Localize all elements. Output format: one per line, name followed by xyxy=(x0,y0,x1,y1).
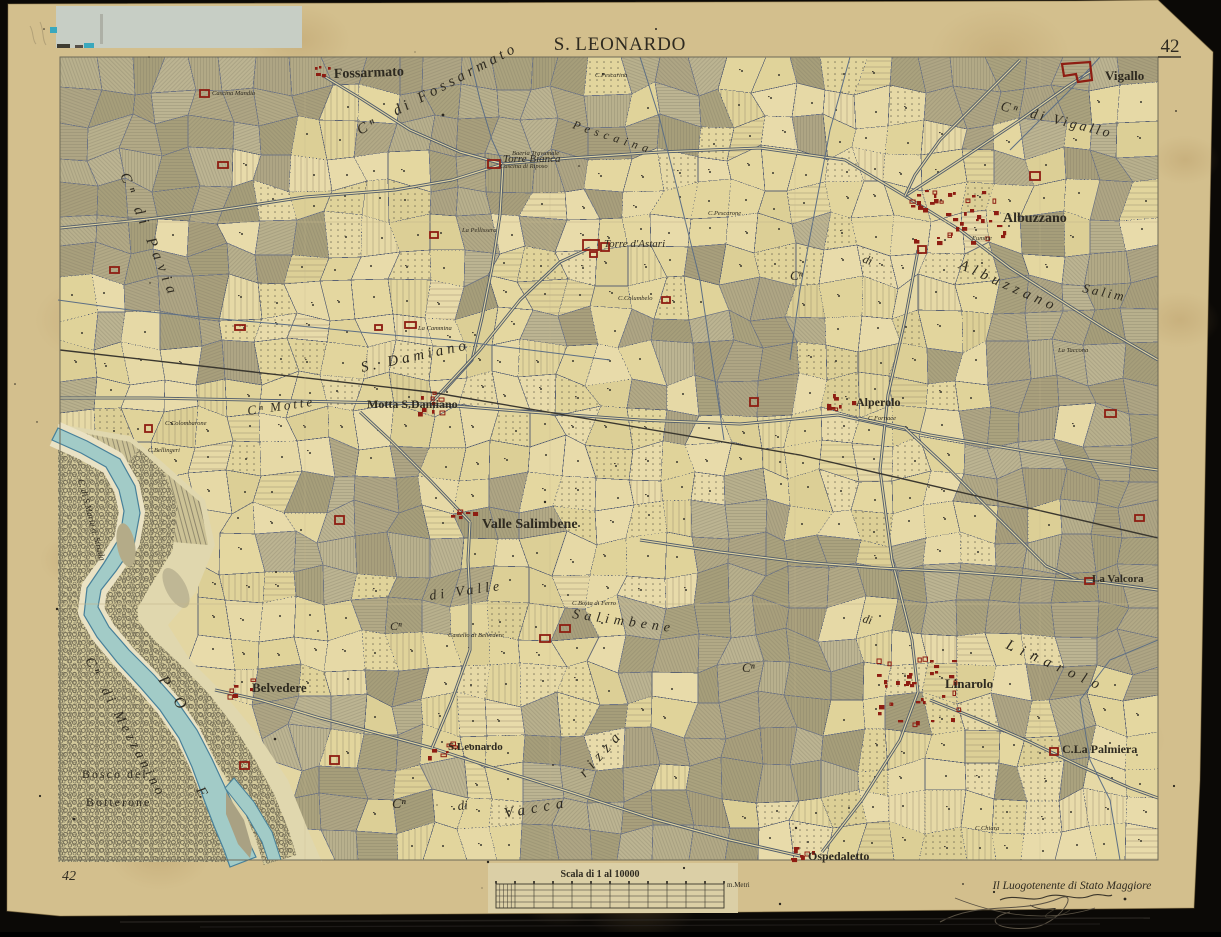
svg-text:Cⁿ: Cⁿ xyxy=(392,797,407,812)
svg-text:C.Bosta di Ferro: C.Bosta di Ferro xyxy=(572,600,617,607)
svg-text:La Cammina: La Cammina xyxy=(417,325,452,332)
svg-text:C.Pescarone: C.Pescarone xyxy=(708,210,741,217)
svg-text:S.Leonardo: S.Leonardo xyxy=(448,741,503,753)
svg-text:C.La Palmiera: C.La Palmiera xyxy=(1062,742,1137,756)
svg-text:Torre Bianca: Torre Bianca xyxy=(503,153,561,165)
svg-text:La Taccona: La Taccona xyxy=(1057,347,1088,354)
svg-text:C.Colombarone: C.Colombarone xyxy=(165,420,207,427)
svg-text:Valle Salimbene: Valle Salimbene xyxy=(482,517,578,532)
svg-text:Cⁿ: Cⁿ xyxy=(742,660,756,675)
svg-text:Albuzzano: Albuzzano xyxy=(1003,211,1067,226)
svg-text:42: 42 xyxy=(62,869,76,884)
svg-text:Vigallo: Vigallo xyxy=(1105,68,1144,83)
svg-text:Fossarmato: Fossarmato xyxy=(334,65,404,82)
svg-text:C.Fornace: C.Fornace xyxy=(868,415,896,422)
svg-text:Linarolo: Linarolo xyxy=(945,676,993,691)
svg-text:Cⁿ: Cⁿ xyxy=(790,268,804,283)
svg-text:S. LEONARDO: S. LEONARDO xyxy=(554,34,686,55)
svg-text:Ospedaletto: Ospedaletto xyxy=(808,849,869,863)
svg-text:C.Chiara: C.Chiara xyxy=(975,825,999,832)
svg-text:Motta S.Damiano: Motta S.Damiano xyxy=(367,397,458,411)
svg-text:La Valcora: La Valcora xyxy=(1092,573,1144,585)
svg-text:Torre d'Astari: Torre d'Astari xyxy=(604,238,665,250)
svg-text:C.Bellingeri: C.Bellingeri xyxy=(148,447,180,454)
svg-text:42: 42 xyxy=(1161,36,1180,57)
svg-text:Scala di 1 al 10000: Scala di 1 al 10000 xyxy=(561,869,640,880)
svg-text:Cascina Mandia: Cascina Mandia xyxy=(212,90,255,97)
svg-text:Cⁿ: Cⁿ xyxy=(390,619,403,633)
svg-text:Fumine: Fumine xyxy=(971,235,992,242)
svg-text:m.Metri: m.Metri xyxy=(727,881,750,889)
svg-text:Botterone: Botterone xyxy=(86,795,151,809)
svg-text:C.Columbelo: C.Columbelo xyxy=(618,295,653,302)
svg-text:Alperolo: Alperolo xyxy=(856,395,900,409)
svg-text:di: di xyxy=(457,797,469,813)
svg-text:Castello di Belvedere: Castello di Belvedere xyxy=(448,632,504,639)
svg-text:C.Pescarina: C.Pescarina xyxy=(595,72,627,79)
svg-text:La Pellissera: La Pellissera xyxy=(461,227,497,234)
svg-text:Belvedere: Belvedere xyxy=(252,680,307,695)
svg-text:Il Luogotenente di Stato Maggi: Il Luogotenente di Stato Maggiore xyxy=(992,880,1152,892)
svg-text:Bosco del: Bosco del xyxy=(82,767,148,781)
